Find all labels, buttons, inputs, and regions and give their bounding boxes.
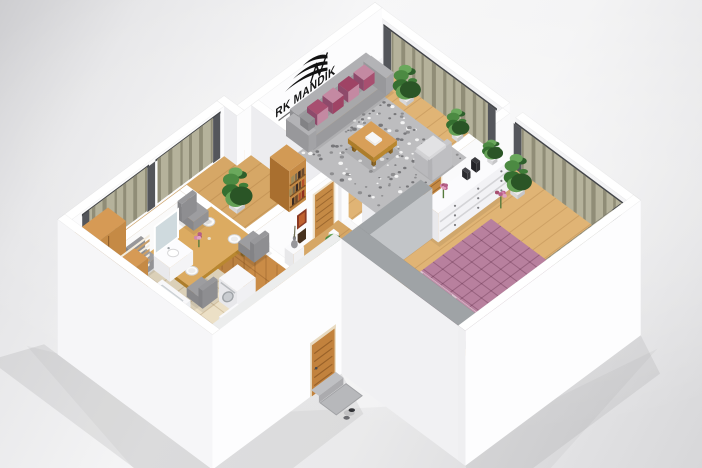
rug-speckle [378,124,383,127]
rug-speckle [372,110,375,112]
rug-speckle [403,167,407,170]
leaves [230,187,253,206]
curtain [189,134,192,180]
rug-speckle [350,127,353,129]
chair-back-sw-face [199,288,203,309]
rug-speckle [403,132,406,134]
rug-speckle [361,118,364,120]
rug-speckle [367,117,370,119]
curtain [591,180,595,227]
rug-speckle [365,186,368,188]
rug-speckle [397,146,399,147]
cup [208,237,211,240]
leaves [505,160,520,171]
rug-speckle [415,138,419,141]
rug-speckle [422,138,425,140]
curtain [473,92,476,139]
leaves [519,169,528,174]
shoe-shadow [344,410,355,416]
end-cap [458,326,465,466]
drawer-knob [454,224,456,226]
chair-back-sw-face [250,242,254,263]
rug-speckle [384,128,387,130]
drawer-knob [477,197,479,199]
rug-speckle [398,155,400,157]
rug-speckle [381,195,383,197]
rug-speckle [302,151,306,154]
curtain [199,125,203,172]
rug-speckle [358,121,360,123]
curtain [552,151,554,197]
rug-speckle [407,126,412,129]
curtain [158,157,161,203]
rug-speckle [376,183,378,185]
rug-speckle [382,101,385,103]
rug-speckle [379,104,381,106]
rug-speckle [358,191,362,194]
drawer-knob [454,205,456,207]
rug-speckle [394,164,396,166]
rug-speckle [379,186,382,188]
jog-wall [237,110,244,165]
leaves [487,147,503,159]
rug-speckle [400,115,404,118]
rug-speckle [388,183,391,185]
door-knob [315,367,318,370]
rug-speckle [354,183,356,184]
rug-speckle [342,172,346,175]
flower [197,236,201,240]
rug-speckle [407,142,411,145]
rug-speckle [371,196,374,198]
vase [291,240,298,248]
rug-speckle [387,164,389,166]
curtain [443,70,446,116]
rug-speckle [368,195,371,197]
curtain [483,100,486,146]
rug-speckle [387,176,390,178]
rug-speckle [456,154,459,156]
rug-speckle [331,144,335,147]
rug-speckle [414,177,417,179]
leaves [223,174,239,186]
rug-speckle [394,175,398,178]
curtain [391,32,393,78]
curtain [522,129,524,175]
rug-speckle [345,131,348,133]
rug-speckle [363,122,366,124]
curtain [133,174,137,221]
rug-speckle [403,117,405,119]
drawer-knob [500,170,502,172]
rug-speckle [338,162,343,165]
rug-speckle [317,154,321,157]
curtain [180,141,182,187]
rug-speckle [405,157,409,160]
rug-speckle [411,181,414,183]
curtain [432,62,436,109]
rug-speckle [369,113,371,115]
rug-speckle [348,178,352,181]
drawer-knob [500,180,502,182]
curtain [583,174,586,220]
flower [498,192,502,196]
rug-speckle [377,204,380,206]
curtain [168,148,172,195]
faucet [167,247,169,249]
rug-speckle [330,172,334,175]
plate-center [231,237,238,242]
floor-plan-render: RK MANDİK [0,0,702,468]
rug-speckle [390,105,394,108]
rug-speckle [400,138,404,141]
rug-speckle [349,174,351,176]
rug-speckle [400,121,404,124]
rug-speckle [340,179,344,182]
curtain [562,159,566,206]
rug-speckle [388,117,391,119]
rug-speckle [401,112,404,114]
curtain [145,167,147,213]
rug-speckle [411,153,413,155]
flower [503,194,507,198]
apartment-3d-scene: RK MANDİK [0,0,702,468]
rug-speckle [398,190,402,193]
rug-speckle [349,129,352,131]
leaves [452,121,470,135]
curtain [211,118,213,164]
shoe [343,416,349,420]
rug-speckle [401,155,404,157]
rug-speckle [330,151,334,154]
rug-speckle [415,174,417,176]
curtain [574,167,577,213]
rug-speckle [459,158,461,159]
rug-speckle [312,153,315,155]
drawer-knob [454,214,456,216]
rug-speckle [389,178,393,181]
plate-center [188,268,195,273]
rug-speckle [398,171,401,173]
sink [168,249,179,257]
rug-speckle [387,129,391,132]
rug-speckle [378,112,381,114]
leaves [400,81,421,98]
rug-speckle [397,148,399,150]
drawer-knob [477,188,479,190]
rug-speckle [345,168,347,170]
curtain [422,54,424,100]
rug-speckle [319,158,323,161]
leaves [511,174,532,191]
drawer-knob [477,207,479,209]
flower [198,232,202,236]
rug-speckle [413,129,416,131]
rug-speckle [406,185,409,187]
rug-speckle [341,151,345,154]
rug-speckle [399,187,401,188]
rug-speckle [394,113,397,115]
curtain-dark-panel [213,113,220,163]
rug-speckle [340,145,343,147]
rug-speckle [340,155,344,158]
curtain [532,136,536,183]
rug-speckle [395,129,399,132]
curtain-dark-panel [147,161,155,212]
rug-speckle [378,177,380,178]
curtain [543,144,546,190]
rug-speckle [387,104,391,107]
rug-speckle [335,145,339,148]
flower [444,184,448,188]
rug-speckle [347,130,349,131]
